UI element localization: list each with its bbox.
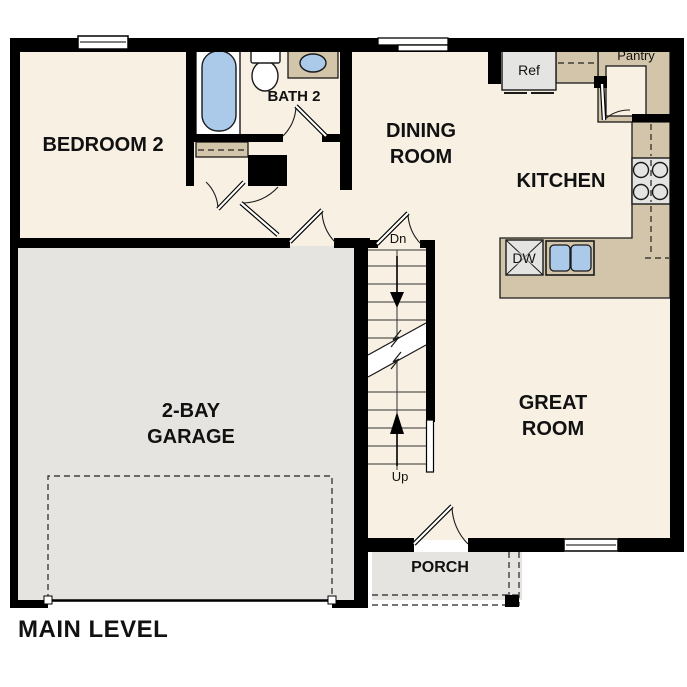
room-label-garage: 2-BAY GARAGE (147, 398, 235, 450)
bedroom-window (78, 36, 128, 49)
pantry-interior (606, 66, 646, 116)
garage-door-jamb-right (328, 596, 336, 604)
wall-left-upper (10, 38, 20, 248)
porch-post (505, 595, 519, 607)
wall-bath-bottom (186, 134, 283, 142)
garage-door-jamb-left (44, 596, 52, 604)
wall-bottom-c (618, 538, 684, 552)
floor-plan-drawing (0, 0, 687, 687)
wall-dining-hall (340, 38, 352, 190)
wall-bedroom-bath (186, 44, 196, 136)
wall-bottom-a (354, 538, 414, 552)
room-label-bath2: BATH 2 (267, 84, 320, 110)
wall-bottom-b (468, 538, 564, 552)
wall-bedroom-garage (10, 238, 290, 248)
stairs-down-label: Dn (390, 232, 407, 246)
wall-garage-left (10, 246, 18, 608)
room-label-porch: PORCH (411, 555, 469, 581)
great-room-window (564, 539, 618, 551)
wall-closet-left (186, 142, 194, 186)
kitchen-sink-icon (546, 241, 594, 275)
room-label-dining: DINING ROOM (386, 118, 456, 170)
ref-label: Ref (518, 63, 540, 77)
wall-pantry-bottom (632, 114, 670, 122)
floor-plan: BEDROOM 2 BATH 2 DINING ROOM KITCHEN GRE… (0, 0, 687, 687)
wall-garage-bottom-right (332, 600, 368, 608)
stairs-up-label: Up (392, 470, 409, 484)
room-label-kitchen: KITCHEN (517, 168, 606, 194)
pantry-label: Pantry (617, 49, 655, 63)
plan-title: MAIN LEVEL (18, 616, 168, 644)
stair-railing (427, 420, 434, 472)
wall-garage-right (354, 238, 368, 608)
wall-right (670, 38, 684, 552)
room-label-great-room: GREAT ROOM (519, 390, 588, 442)
wall-stair-top-left (368, 240, 378, 248)
wall-garage-bottom-left (10, 600, 48, 608)
dishwasher-label: DW (512, 251, 535, 265)
room-label-bedroom2: BEDROOM 2 (42, 132, 163, 158)
wall-closet-corner (248, 155, 287, 186)
wall-kitchen-stub (488, 38, 501, 84)
vanity-sink-icon (300, 54, 326, 72)
wall-stair-right (426, 240, 435, 422)
bathtub-icon (196, 44, 240, 136)
